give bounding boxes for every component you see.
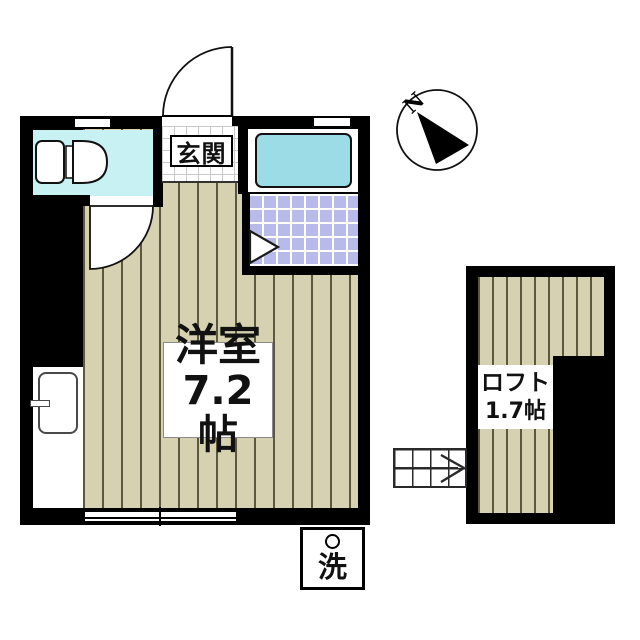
plan-symbol-overlay: N [0, 0, 640, 640]
toilet-lid-icon [66, 146, 73, 178]
entrance-door-swing-arc [163, 47, 232, 116]
toilet-tank-icon [36, 141, 64, 183]
bath-door-icon [250, 231, 278, 263]
toilet-door-swing [90, 206, 153, 269]
toilet-bowl-icon [73, 141, 107, 183]
floor-plan: 玄関 洋室 7.2帖 ロフト 1.7帖 洗 [0, 0, 640, 640]
